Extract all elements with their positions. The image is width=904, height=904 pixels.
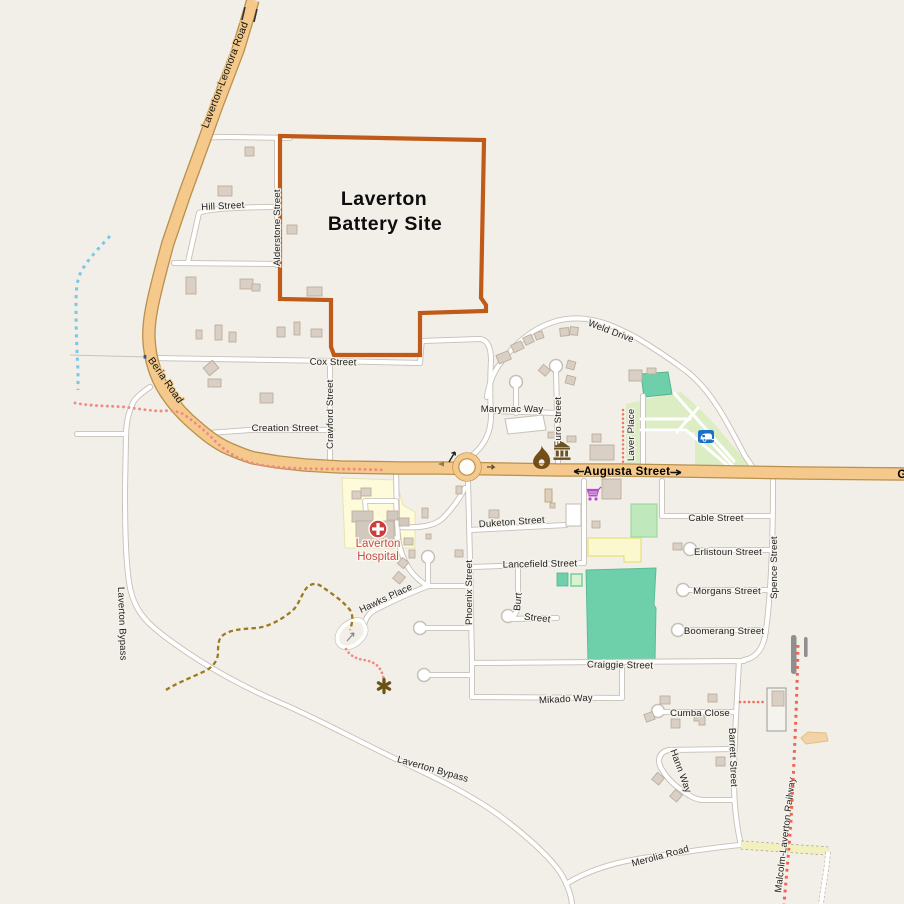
svg-text:G: G	[897, 468, 904, 481]
svg-text:Cable Street: Cable Street	[688, 513, 743, 524]
svg-text:Creation Street: Creation Street	[252, 423, 319, 434]
svg-text:Hospital: Hospital	[357, 551, 399, 563]
svg-text:Laverton: Laverton	[356, 538, 401, 550]
svg-text:Crawford Street: Crawford Street	[325, 379, 336, 449]
svg-text:Lancefield Street: Lancefield Street	[503, 558, 578, 570]
svg-text:Hill Street: Hill Street	[201, 200, 245, 213]
svg-text:Battery Site: Battery Site	[328, 213, 442, 235]
svg-text:Phoenix Street: Phoenix Street	[464, 560, 475, 625]
svg-text:Erlistoun Street: Erlistoun Street	[694, 547, 762, 558]
svg-text:Burt: Burt	[512, 592, 525, 611]
svg-text:Cumba Close: Cumba Close	[670, 708, 730, 719]
svg-text:Barrett Street: Barrett Street	[726, 728, 739, 788]
svg-text:Marymac Way: Marymac Way	[481, 404, 544, 415]
svg-text:Euro Street: Euro Street	[553, 397, 564, 447]
svg-text:Craiggie Street: Craiggie Street	[587, 659, 654, 671]
svg-text:Augusta Street: Augusta Street	[584, 465, 671, 478]
svg-text:Cox Street: Cox Street	[310, 357, 357, 369]
svg-text:Morgans Street: Morgans Street	[693, 586, 761, 597]
svg-text:Spence Street: Spence Street	[769, 536, 780, 599]
svg-text:Laver Place: Laver Place	[626, 409, 637, 461]
svg-text:Boomerang Street: Boomerang Street	[684, 626, 764, 637]
svg-text:Laverton: Laverton	[341, 188, 427, 210]
svg-text:Alderstone Street: Alderstone Street	[272, 189, 283, 266]
